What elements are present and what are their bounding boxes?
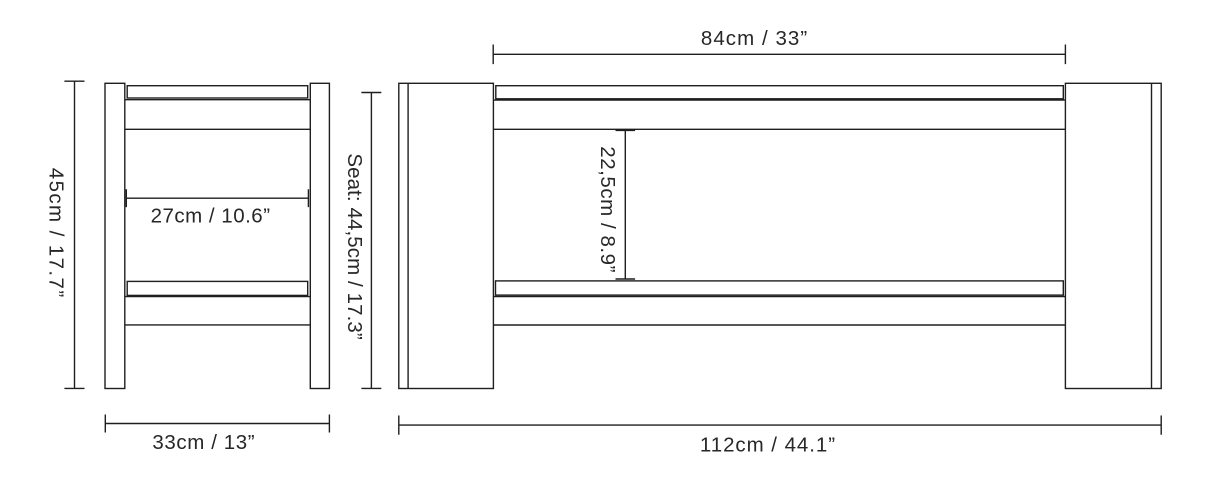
svg-text:Seat: 44,5cm / 17.3”: Seat: 44,5cm / 17.3” bbox=[343, 153, 366, 339]
svg-text:22,5cm / 8.9”: 22,5cm / 8.9” bbox=[596, 146, 619, 273]
svg-text:33cm / 13”: 33cm / 13” bbox=[152, 431, 255, 454]
svg-text:112cm / 44.1”: 112cm / 44.1” bbox=[700, 433, 836, 456]
svg-text:27cm / 10.6”: 27cm / 10.6” bbox=[151, 204, 271, 227]
svg-text:84cm / 33”: 84cm / 33” bbox=[701, 27, 808, 50]
svg-text:45cm / 17.7”: 45cm / 17.7” bbox=[45, 168, 68, 299]
